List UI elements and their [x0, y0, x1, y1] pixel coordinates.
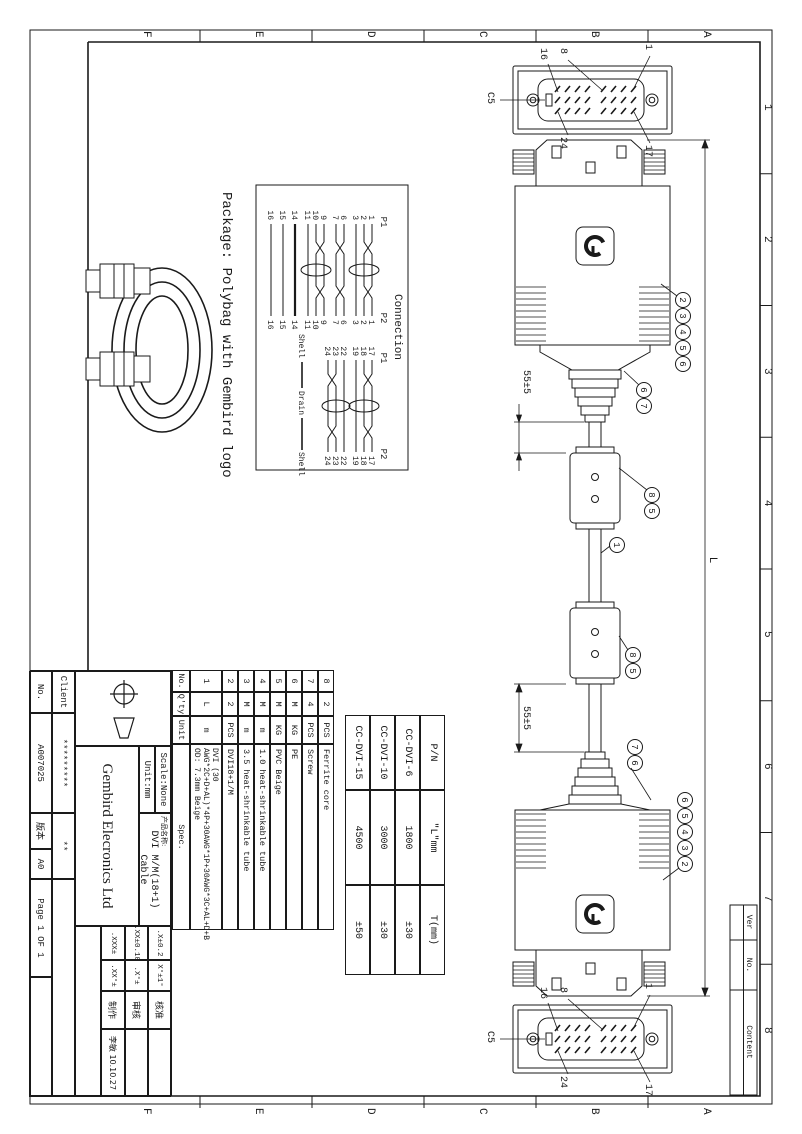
callout-number: 7: [629, 744, 639, 749]
pn-table: P/N "L"mm T(mm) CC-DVI-6 1800 ±30 CC-DVI…: [345, 715, 445, 975]
bom-unit: PCS: [302, 716, 318, 744]
client-label: Client: [52, 671, 75, 713]
ferrite-core-left: [570, 447, 620, 529]
tolerance-cell: .XX±0.10: [125, 926, 148, 960]
pin-number: 6: [338, 320, 347, 325]
connection-header: P2: [378, 449, 388, 460]
make-label: 制作: [101, 991, 125, 1029]
pin-number: 15: [277, 320, 286, 330]
pin-number: 24: [322, 346, 331, 356]
callout-number: 6: [629, 760, 639, 765]
shell-label: Shell: [296, 334, 305, 358]
tolerance-cell: .XX°±: [101, 960, 125, 991]
pin-label: 1: [642, 983, 653, 989]
empty-cell: [75, 926, 101, 1097]
bom-no: 8: [318, 670, 334, 692]
signature-cell: [148, 1029, 171, 1097]
connection-title: Connection: [391, 294, 403, 360]
connection-header: P2: [378, 313, 388, 324]
pn-col-header: "L"mm: [420, 790, 445, 885]
package-plug: [86, 264, 150, 298]
pin-number: 15: [277, 210, 286, 220]
tolerance-cell: .X±0.2: [148, 926, 171, 960]
pin-number: 23: [330, 346, 339, 356]
callout-number: 5: [627, 668, 637, 673]
pin-number: 7: [330, 320, 339, 325]
c5-blade-slot: [546, 94, 552, 106]
drawing-no-label: No.: [29, 671, 52, 713]
callout-number: 5: [677, 345, 687, 350]
pin-number: 10: [310, 320, 319, 330]
pin-number: 11: [302, 210, 311, 220]
bom-no: 5: [270, 670, 286, 692]
company-name: Gembird Elecronics Ltd: [75, 746, 139, 926]
bom-no: 7: [302, 670, 318, 692]
shell-label: Shell: [296, 452, 305, 476]
callout-number: 5: [679, 813, 689, 818]
product-label: 产品名称:: [159, 814, 170, 925]
signature-cell: [125, 1029, 148, 1097]
tolerance-cell: .X°±: [125, 960, 148, 991]
c5-blade-slot: [546, 1033, 552, 1045]
dvi-face-view-right: [500, 995, 672, 1082]
pn-col-header: P/N: [420, 715, 445, 790]
bom-spec: 1.0 heat-shrinkable tube: [254, 744, 270, 930]
pin-number: 19: [350, 346, 359, 356]
pin-number: 11: [302, 320, 311, 330]
pin-number: 14: [289, 210, 298, 220]
product-name: DVI M/M(18+1) Cable: [137, 814, 159, 925]
pn-cell: ±30: [395, 885, 420, 975]
callout-number: 5: [646, 508, 656, 513]
pin-number: 16: [265, 210, 274, 220]
stars-cell: **: [52, 813, 75, 879]
maker-signature: 李敏 10.10.27: [101, 1029, 125, 1097]
pin-number: 9: [318, 215, 327, 220]
bom-qty: 4: [302, 692, 318, 716]
bom-header-unit: Unit: [172, 716, 190, 744]
bom-spec: PVC Beige: [270, 744, 286, 930]
scale-label: Scale:None: [155, 746, 171, 813]
pin-number: 17: [366, 346, 375, 356]
callout-number: 1: [611, 542, 621, 547]
bom-unit: m: [254, 716, 270, 744]
bom-no: 6: [286, 670, 302, 692]
pin-label: 8: [557, 987, 568, 993]
bom-unit: KG: [270, 716, 286, 744]
pin-label: 24: [557, 1076, 568, 1088]
connection-header: P1: [378, 217, 388, 228]
pn-cell: 3000: [370, 790, 395, 885]
version-value: A0: [29, 849, 52, 879]
revision-content-label: Content: [744, 1025, 753, 1059]
version-label: 版本: [29, 813, 52, 849]
dimension-text: L: [706, 557, 718, 564]
bom-unit: PCS: [318, 716, 334, 744]
bom-spec: DVI18+1/M: [222, 744, 238, 930]
pin-label: 8: [557, 48, 568, 54]
drain-label: Drain: [296, 391, 305, 415]
strain-relief-left: [540, 345, 650, 422]
dimension-text: 55±5: [520, 706, 531, 730]
callout-number: 4: [679, 829, 689, 834]
bom-no: 3: [238, 670, 254, 692]
dimension-text: 55±5: [520, 370, 531, 394]
callout-number: 7: [638, 403, 648, 408]
pin-number: 3: [350, 215, 359, 220]
pin-number: 10: [310, 210, 319, 220]
molded-connector-left: [515, 186, 670, 345]
review-label: 审核: [125, 991, 148, 1029]
connection-header: P1: [378, 353, 388, 364]
pin-number: 2: [358, 215, 367, 220]
pn-cell: ±30: [370, 885, 395, 975]
bom-table: 8 2 PCS Ferrite core 7 4 PCS Screw 6 M K…: [172, 670, 334, 930]
pin-number: 18: [358, 456, 367, 466]
drawing-no: A007025: [29, 713, 52, 813]
pin-number: 22: [338, 346, 347, 356]
dvi-face-view-left: [500, 56, 672, 143]
approve-label: 核准: [148, 991, 171, 1029]
empty-cell: [29, 977, 52, 1097]
tolerance-cell: .XXX±: [101, 926, 125, 960]
molded-connector-right: [515, 810, 670, 950]
callout-number: 2: [677, 297, 687, 302]
pin-number: 16: [265, 320, 274, 330]
bom-unit: m: [190, 716, 222, 744]
pin-number: 19: [350, 456, 359, 466]
bom-header-spec: Spec.: [172, 744, 190, 930]
pin-number: 9: [318, 320, 327, 325]
unit-label: Unit:mm: [139, 746, 155, 813]
ferrite-core-right: [570, 602, 620, 684]
pin-number: 22: [338, 456, 347, 466]
pin-label: 17: [642, 145, 653, 157]
pin-grid: [555, 86, 636, 114]
bom-qty: 2: [222, 692, 238, 716]
pin-grid: [555, 1025, 636, 1053]
bom-qty: M: [238, 692, 254, 716]
callout-number: 8: [646, 492, 656, 497]
bom-unit: PCS: [222, 716, 238, 744]
pin-number: 1: [366, 320, 375, 325]
title-block: Scale:None Unit:mm 产品名称: DVI M/M(18+1) C…: [30, 670, 172, 1096]
pn-cell: 4500: [345, 790, 370, 885]
pn-cell: ±50: [345, 885, 370, 975]
bom-spec: 3.5 heat-shrinkable tube: [238, 744, 254, 930]
callout-number: 3: [679, 845, 689, 850]
package-note: Package: Polybag with Gembird logo: [218, 192, 234, 552]
pin-number: 7: [330, 215, 339, 220]
bom-no: 4: [254, 670, 270, 692]
bom-spec: DVI (30 AWG*2C+D+AL)*4P+30AWG*1P+30AWG*3…: [190, 744, 222, 930]
revision-no-label: No.: [744, 958, 753, 972]
pin-number: 6: [338, 215, 347, 220]
bom-header-no: No.: [172, 670, 190, 692]
pn-cell: CC-DVI-10: [370, 715, 395, 790]
callout-number: 6: [638, 387, 648, 392]
package-plug: [86, 352, 150, 386]
pin-label: 16: [537, 987, 548, 999]
client-value: *********: [52, 713, 75, 813]
package-coil-illustration: [86, 264, 212, 432]
empty-cell: [52, 879, 75, 1097]
bom-unit: KG: [286, 716, 302, 744]
bom-qty: M: [286, 692, 302, 716]
bom-unit: m: [238, 716, 254, 744]
tolerance-cell: X°±1°: [148, 960, 171, 991]
page-cell: Page 1 OF 1: [29, 879, 52, 977]
revision-block: [730, 905, 757, 1095]
pin-number: 17: [366, 456, 375, 466]
pn-col-header: T(mm): [420, 885, 445, 975]
bom-qty: M: [270, 692, 286, 716]
dvi-hood-side-right: [513, 950, 665, 996]
projection-symbol-cell: [75, 671, 171, 746]
bom-no: 1: [190, 670, 222, 692]
callout-number: 8: [627, 652, 637, 657]
bom-header-qty: Q'ty: [172, 692, 190, 716]
pin-number: 18: [358, 346, 367, 356]
pin-number: 14: [289, 320, 298, 330]
pin-number: 2: [358, 320, 367, 325]
pin-label: 24: [557, 137, 568, 149]
pin-label: 16: [537, 48, 548, 60]
pin-number: 3: [350, 320, 359, 325]
callout-number: 3: [677, 313, 687, 318]
pn-cell: CC-DVI-6: [395, 715, 420, 790]
screenshot-root: 1 2 3 4 5 6 7 8 A B C D E F A B C D E F: [0, 0, 802, 1134]
bom-spec: PE: [286, 744, 302, 930]
pin-label: C5: [484, 92, 495, 104]
projection-symbol-icon: [77, 672, 170, 745]
bom-qty: M: [254, 692, 270, 716]
callout-number: 6: [679, 797, 689, 802]
pn-cell: 1800: [395, 790, 420, 885]
pin-label: C5: [484, 1031, 495, 1043]
callout-number: 6: [677, 361, 687, 366]
pn-cell: CC-DVI-15: [345, 715, 370, 790]
callout-number: 4: [677, 329, 687, 334]
pin-label: 17: [642, 1084, 653, 1096]
pin-number: 1: [366, 215, 375, 220]
bom-qty: 2: [318, 692, 334, 716]
revision-ver-label: Ver: [744, 915, 753, 930]
bom-qty: L: [190, 692, 222, 716]
product-cell: 产品名称: DVI M/M(18+1) Cable: [139, 813, 171, 926]
bom-spec: Screw: [302, 744, 318, 930]
bom-spec: Ferrite core: [318, 744, 334, 930]
bom-no: 2: [222, 670, 238, 692]
pin-number: 23: [330, 456, 339, 466]
pin-number: 24: [322, 456, 331, 466]
zone-ticks: [200, 30, 772, 1108]
pin-label: 1: [642, 44, 653, 50]
callout-number: 2: [679, 861, 689, 866]
drawing-sheet: 1 2 3 4 5 6 7 8 A B C D E F A B C D E F: [0, 0, 802, 1134]
